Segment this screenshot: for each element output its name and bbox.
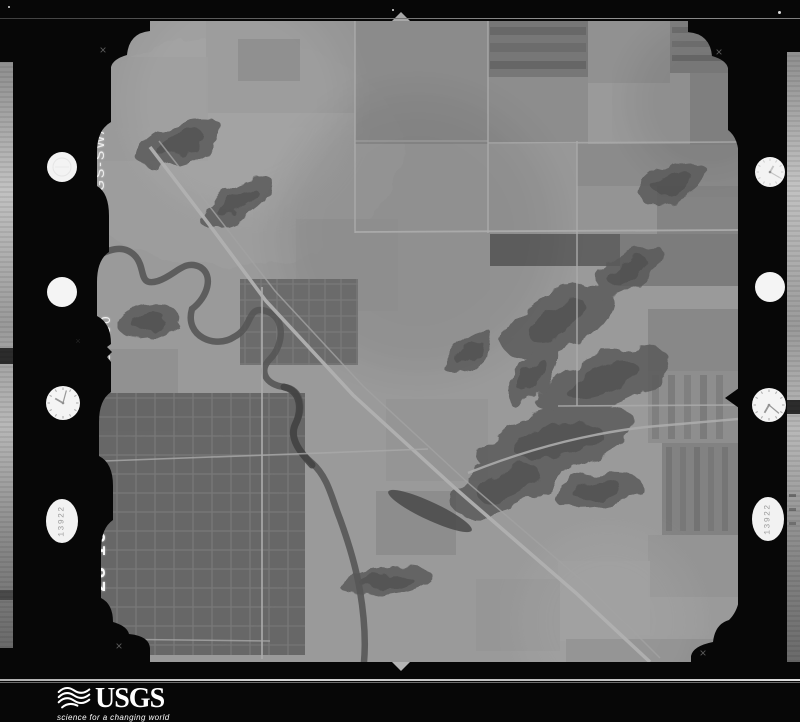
frame-counter-value: 13922: [764, 503, 773, 535]
film-margin-right: [688, 20, 787, 662]
fiducial-cross-left-edge: ×: [75, 336, 80, 346]
usgs-tagline: science for a changing world: [57, 713, 170, 722]
record-dial-blank: [46, 276, 78, 308]
clock-dial: [45, 385, 81, 421]
clock-dial: [751, 387, 787, 423]
film-frame-mask: × × × × ×: [0, 0, 800, 722]
film-edge-line-top: [0, 18, 800, 19]
usgs-wordmark: USGS: [95, 686, 164, 712]
dust-speck: [778, 11, 781, 14]
frame-counter: 13922: [751, 496, 785, 542]
dust-speck: [8, 6, 10, 8]
film-scan-viewport: GS-SWA1 5 130 APR 28 1966 × × × × × 1392…: [0, 0, 800, 722]
dust-speck: [392, 9, 394, 11]
fiducial-cross-bottom-left: ×: [115, 639, 122, 653]
clock-dial-faint: [754, 156, 786, 188]
usgs-wave-icon: [57, 684, 91, 712]
frame-counter: 13922: [45, 498, 79, 544]
fiducial-cross-top-right: ×: [715, 45, 722, 59]
fiducial-cross-bottom-right: ×: [699, 646, 706, 660]
record-dial-blank: [46, 151, 78, 183]
frame-counter-value: 13922: [58, 505, 67, 537]
fiducial-cross-top-left: ×: [99, 43, 106, 57]
record-dial-blank: [754, 271, 786, 303]
usgs-logo: USGS science for a changing world: [57, 684, 170, 722]
film-margin-left: [13, 20, 150, 662]
film-edge-line-bottom: [0, 679, 800, 681]
